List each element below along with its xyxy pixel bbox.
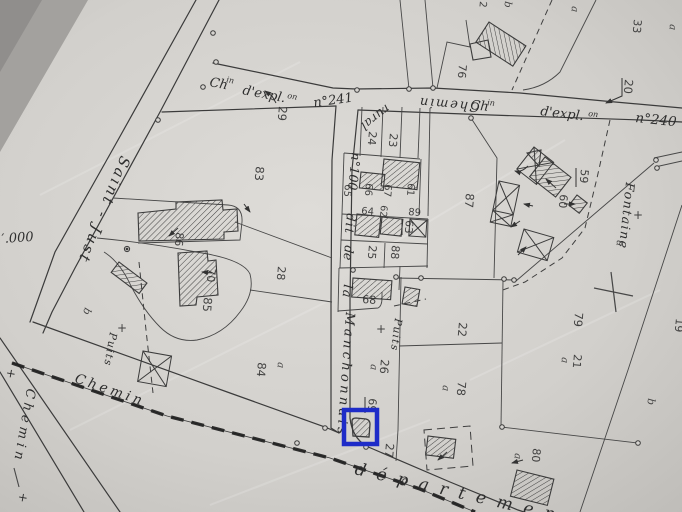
parcel-label-22: 22 [455,322,470,338]
building-highlighted [352,418,370,437]
parcel-label-a-top-right: a [666,24,677,31]
parcel-label-2-top: 2 [476,1,488,8]
parcel-label-80a: a [511,453,522,460]
parcel-label-a-top-left: a [568,6,579,13]
parcel-label-87: 87 [462,193,477,209]
parcel-label-86: 86 [172,232,186,247]
parcel-label-26a: a [367,364,378,371]
road-label-expl240-sup: in [487,98,496,108]
parcel-label-b-right: b [644,398,657,406]
parcel-label-19: 19 [672,318,682,333]
road-label-expl240-sup2: on [588,109,599,119]
parcel-label-60: 60 [556,194,570,209]
parcel-label-79: 79 [571,312,586,328]
parcel-label-25: 25 [365,245,379,260]
parcel-label-65: 65 [341,184,353,198]
poi-fontaine-cross: + [633,208,643,222]
road-label-expl241-sup2: on [287,91,299,102]
building-68-annex [402,287,420,306]
parcel-label-78a: a [439,385,450,392]
parcel-label-88: 88 [388,245,402,260]
parcel-label-84: 84 [254,362,269,378]
parcel-label-64: 64 [361,206,375,218]
parcel-label-33: 33 [630,19,644,34]
scale-fragment: ′.000 [1,230,34,247]
cadastral-map-photo: Saint - Just Ch in d'expl. on n°241 Chem… [0,0,682,512]
parcel-label-68: 68 [362,293,377,307]
parcel-label-59: 59 [577,169,591,184]
parcel-label-21: 21 [570,354,584,369]
parcel-label-85: 85 [200,297,215,313]
road-label-la: la [340,284,356,298]
parcel-label-84a: a [274,362,285,369]
parcel-label-67: 67 [381,184,393,198]
parcel-label-a-right-mid: a [613,240,624,247]
parcel-label-27: 27 [382,443,397,459]
parcel-label-63: 63 [402,220,415,234]
parcel-label-b-top: b [501,1,513,8]
parcel-label-83: 83 [252,166,267,182]
road-label-de: de [340,245,356,261]
building-62 [380,217,403,236]
parcel-label-20: 20 [621,79,636,95]
parcel-label-61: 61 [404,183,416,197]
parcel-label-66: 66 [362,183,374,197]
parcel-label-89: 89 [408,207,422,219]
parcel-label-29: 29 [275,106,290,122]
map-canvas: Saint - Just Ch in d'expl. on n°241 Chem… [0,0,682,512]
road-label-dit: dit [342,213,359,235]
building-27 [426,436,456,458]
parcel-label-24: 24 [365,131,379,146]
parcel-label-28: 28 [274,266,288,281]
parcel-label-70: 70 [204,268,218,283]
parcel-label-80: 80 [529,448,543,463]
parcel-label-76: 76 [455,64,469,79]
parcel-label-62: 62 [377,205,389,218]
poi-puits-west-cross: + [117,321,127,335]
parcel-label-78: 78 [454,381,469,397]
parcel-label-23: 23 [386,133,400,148]
parcel-label-21a: a [558,357,569,364]
poi-puits-east-cross: + [376,322,386,336]
